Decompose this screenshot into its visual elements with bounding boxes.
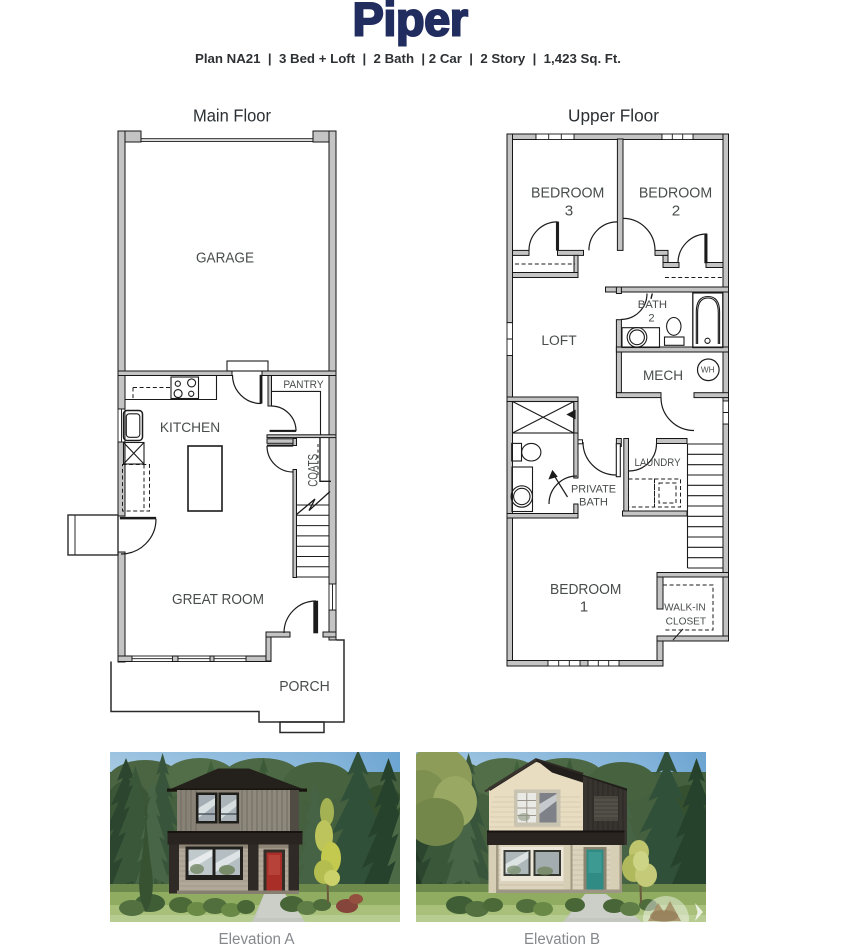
svg-text:WH: WH bbox=[701, 364, 715, 374]
svg-text:BEDROOM: BEDROOM bbox=[550, 581, 621, 598]
svg-text:2: 2 bbox=[672, 203, 680, 220]
svg-text:BATH: BATH bbox=[579, 496, 608, 508]
svg-text:MECH: MECH bbox=[643, 367, 683, 383]
svg-text:GARAGE: GARAGE bbox=[196, 251, 254, 267]
svg-text:Main Floor: Main Floor bbox=[193, 106, 271, 126]
svg-text:LOFT: LOFT bbox=[541, 333, 577, 349]
svg-text:PANTRY: PANTRY bbox=[283, 379, 324, 391]
svg-text:Plan NA21 | 3 Bed + Loft |: Plan NA21 | 3 Bed + Loft | 2 Bath | 2 Ca… bbox=[195, 51, 621, 66]
svg-text:PRIVATE: PRIVATE bbox=[571, 484, 616, 496]
svg-text:BEDROOM: BEDROOM bbox=[531, 185, 604, 202]
svg-text:Piper: Piper bbox=[352, 0, 467, 46]
svg-text:1: 1 bbox=[580, 599, 588, 616]
svg-text:WALK-IN: WALK-IN bbox=[664, 603, 706, 614]
svg-text:Elevation A: Elevation A bbox=[219, 931, 296, 948]
svg-text:KITCHEN: KITCHEN bbox=[160, 419, 220, 435]
svg-text:CLOSET: CLOSET bbox=[666, 617, 706, 628]
svg-text:BATH: BATH bbox=[638, 299, 667, 311]
svg-text:3: 3 bbox=[565, 203, 573, 220]
svg-text:Elevation B: Elevation B bbox=[524, 931, 600, 948]
svg-text:GREAT ROOM: GREAT ROOM bbox=[172, 591, 264, 608]
svg-text:PORCH: PORCH bbox=[279, 678, 330, 695]
svg-text:COATS: COATS bbox=[304, 454, 320, 487]
svg-text:Upper Floor: Upper Floor bbox=[568, 106, 659, 126]
svg-text:BEDROOM: BEDROOM bbox=[639, 185, 712, 202]
svg-text:LAUNDRY: LAUNDRY bbox=[634, 457, 681, 469]
svg-text:2: 2 bbox=[648, 312, 654, 324]
